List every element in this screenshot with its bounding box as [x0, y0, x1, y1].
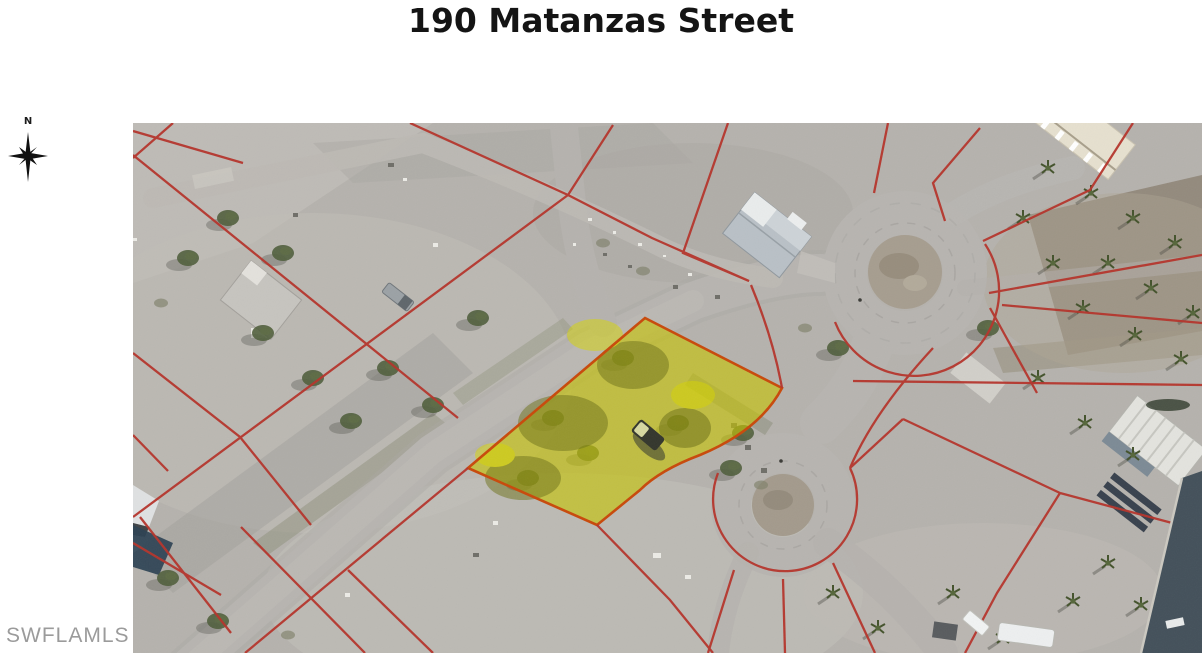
aerial-map-svg — [133, 123, 1202, 653]
photo-grain — [133, 123, 1202, 653]
mls-watermark: SWFLAMLS — [6, 624, 130, 648]
aerial-parcel-map — [133, 123, 1202, 653]
compass-north-label: N — [4, 116, 52, 127]
compass-rose: N — [4, 116, 52, 188]
page-title: 190 Matanzas Street — [0, 1, 1202, 40]
